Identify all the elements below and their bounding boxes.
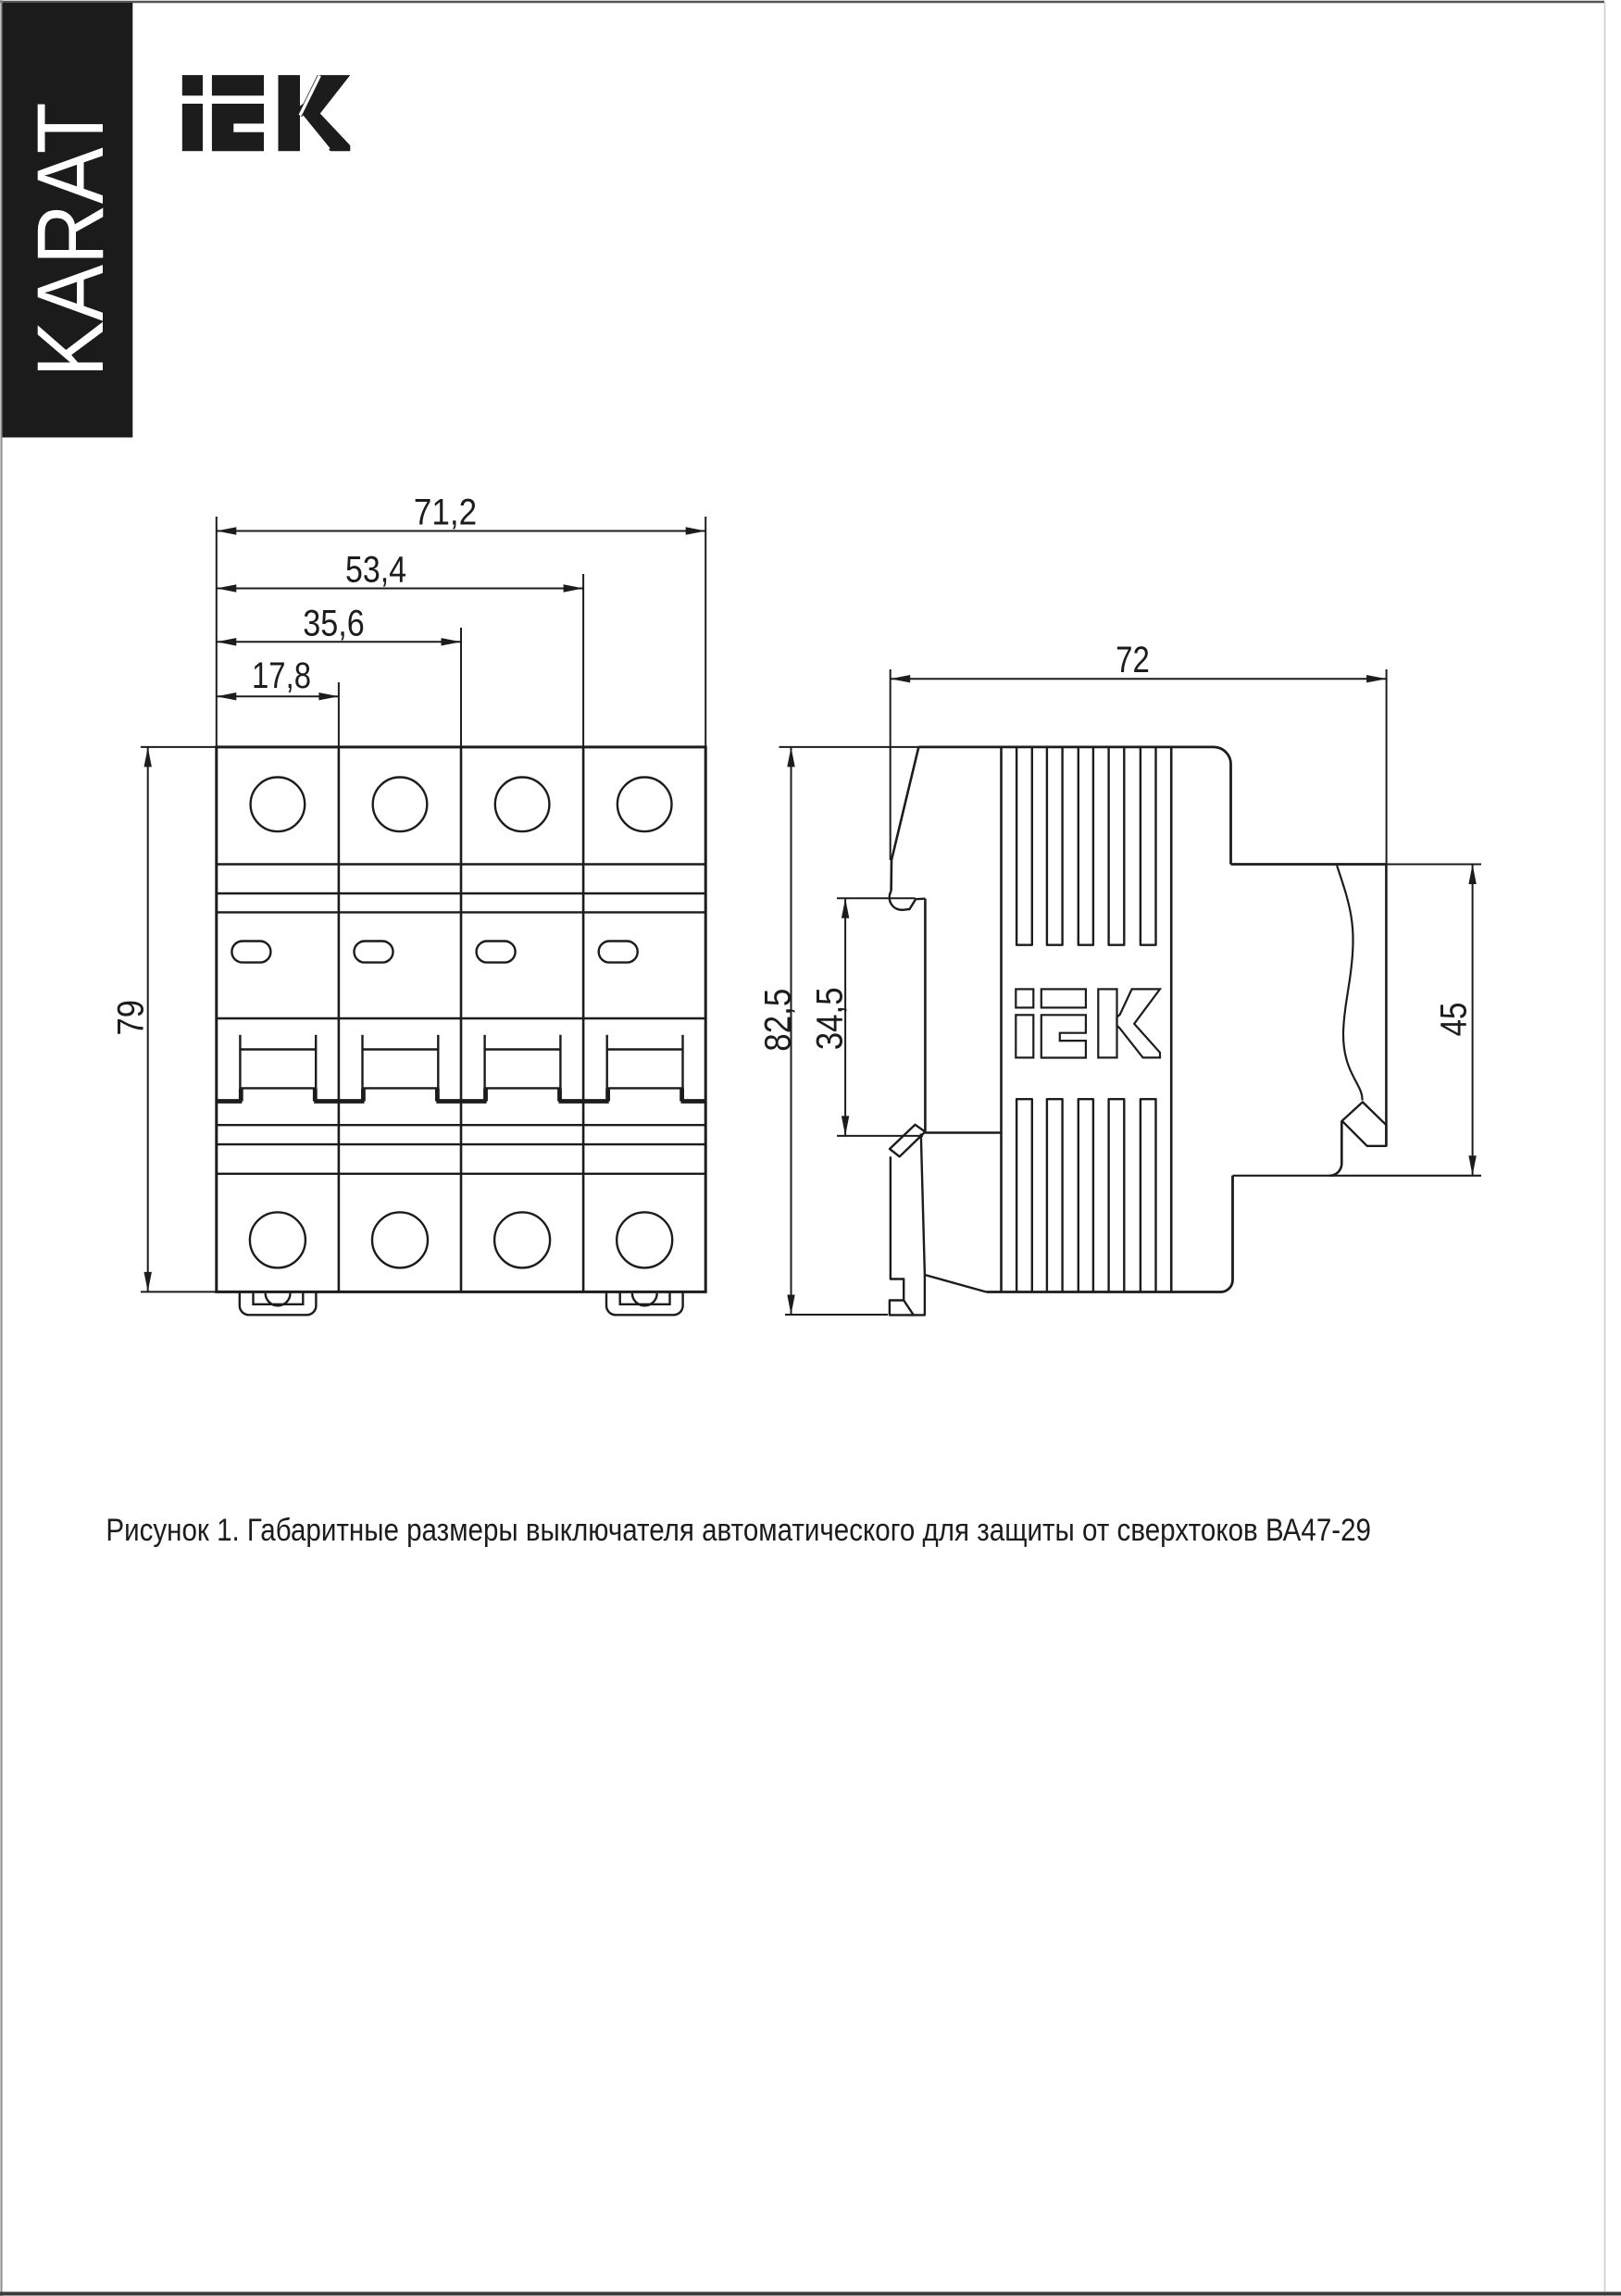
svg-text:45: 45 [1434,1003,1475,1037]
svg-text:72: 72 [1116,640,1150,680]
svg-text:35,6: 35,6 [303,603,365,643]
svg-text:53,4: 53,4 [345,550,406,591]
svg-text:KARAT: KARAT [18,103,123,378]
svg-text:34,5: 34,5 [810,987,851,1050]
svg-text:71,2: 71,2 [414,493,477,533]
svg-text:79: 79 [111,1000,152,1036]
svg-text:Рисунок 1. Габаритные размеры: Рисунок 1. Габаритные размеры выключател… [106,1513,1371,1548]
svg-text:17,8: 17,8 [252,655,311,696]
svg-text:82,5: 82,5 [758,989,799,1052]
